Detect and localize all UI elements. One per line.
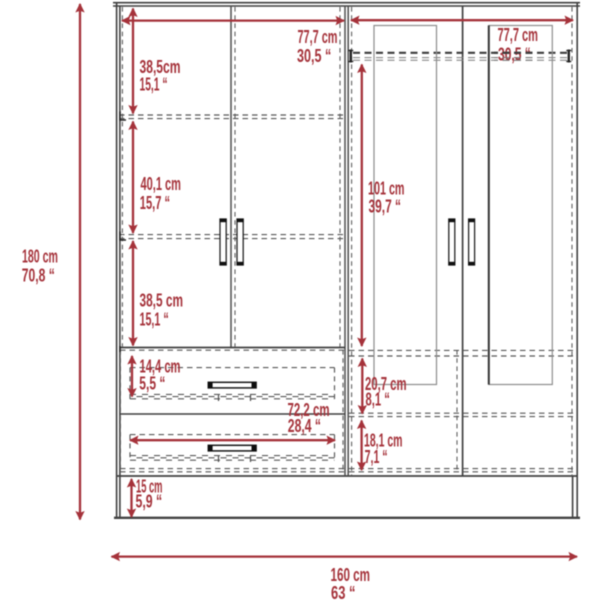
svg-text:28,4 “: 28,4 “ (288, 416, 321, 436)
svg-text:8,1 “: 8,1 “ (366, 390, 390, 410)
svg-text:77,7 cm: 77,7 cm (498, 25, 539, 45)
svg-text:30,5 “: 30,5 “ (498, 44, 531, 64)
svg-text:160 cm: 160 cm (331, 565, 371, 585)
svg-text:5,9 “: 5,9 “ (136, 492, 163, 512)
svg-text:77,7 cm: 77,7 cm (298, 27, 338, 47)
svg-text:40,1 cm: 40,1 cm (141, 174, 182, 194)
svg-text:15,7 “: 15,7 “ (140, 193, 170, 213)
svg-text:15,1 “: 15,1 “ (140, 75, 168, 95)
svg-text:5,5 “: 5,5 “ (139, 374, 165, 394)
svg-text:180 cm: 180 cm (22, 247, 58, 267)
svg-text:15,1 “: 15,1 “ (140, 310, 169, 330)
svg-text:63 “: 63 “ (331, 583, 356, 600)
svg-text:39,7 “: 39,7 “ (369, 196, 402, 216)
svg-text:7,1 “: 7,1 “ (365, 447, 388, 467)
svg-text:70,8 “: 70,8 “ (22, 266, 55, 286)
svg-text:38,5 cm: 38,5 cm (140, 290, 184, 310)
svg-text:30,5 “: 30,5 “ (297, 46, 331, 66)
